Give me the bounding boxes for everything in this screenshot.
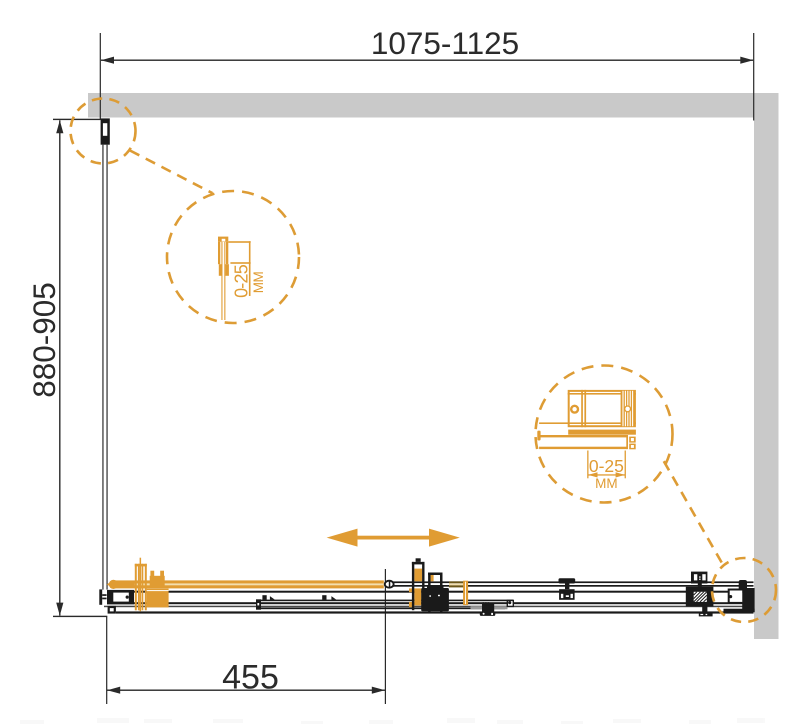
svg-text:MM: MM bbox=[251, 272, 266, 294]
svg-text:0-25: 0-25 bbox=[232, 264, 252, 298]
svg-text:880-905: 880-905 bbox=[26, 282, 62, 398]
svg-text:0-25: 0-25 bbox=[589, 456, 624, 476]
svg-text:455: 455 bbox=[222, 658, 279, 696]
svg-text:MM: MM bbox=[595, 476, 618, 491]
svg-text:1075-1125: 1075-1125 bbox=[371, 25, 519, 61]
